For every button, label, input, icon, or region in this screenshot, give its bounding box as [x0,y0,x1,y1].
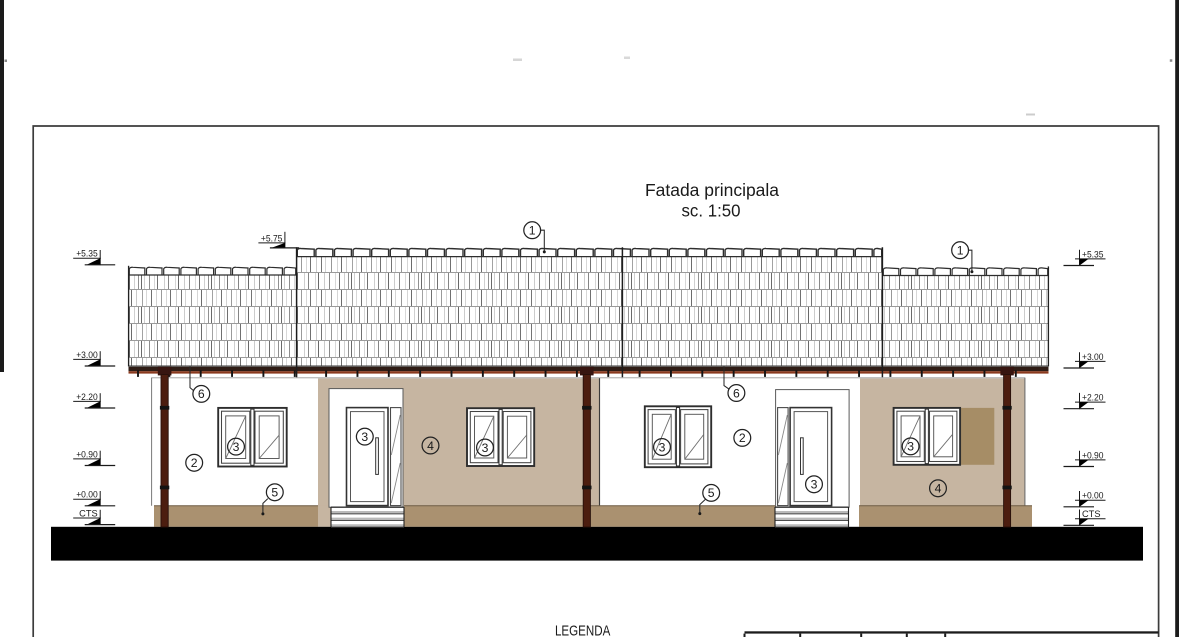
svg-text:CTS: CTS [1082,509,1101,519]
svg-text:1: 1 [957,244,964,258]
svg-text:3: 3 [233,440,240,454]
svg-text:3: 3 [811,478,818,492]
svg-text:5: 5 [708,486,715,500]
svg-text:+2.20: +2.20 [1082,393,1104,403]
svg-text:+2.20: +2.20 [76,392,98,402]
svg-text:3: 3 [482,441,489,455]
svg-text:Fatada principala: Fatada principala [645,180,779,200]
svg-text:+5.75: +5.75 [261,234,283,244]
svg-text:+3.00: +3.00 [1082,352,1104,362]
svg-text:+0.90: +0.90 [76,449,98,459]
svg-text:4: 4 [935,482,942,496]
svg-text:6: 6 [733,386,740,400]
svg-text:3: 3 [659,440,666,454]
svg-text:LEGENDA: LEGENDA [555,624,611,637]
svg-text:6: 6 [198,387,205,401]
svg-text:+5.35: +5.35 [1082,249,1104,259]
svg-text:2: 2 [191,456,198,470]
svg-text:+0.00: +0.00 [1082,491,1104,501]
svg-text:+0.90: +0.90 [1082,450,1104,460]
svg-text:1: 1 [529,224,536,238]
svg-text:3: 3 [361,430,368,444]
svg-text:+3.00: +3.00 [76,350,98,360]
svg-text:5: 5 [271,486,278,500]
svg-text:2: 2 [739,431,746,445]
svg-text:4: 4 [427,439,434,453]
svg-text:+5.35: +5.35 [76,249,98,259]
svg-text:sc. 1:50: sc. 1:50 [682,201,741,221]
svg-text:+0.00: +0.00 [76,490,98,500]
svg-text:3: 3 [907,440,914,454]
svg-text:CTS: CTS [79,508,98,518]
